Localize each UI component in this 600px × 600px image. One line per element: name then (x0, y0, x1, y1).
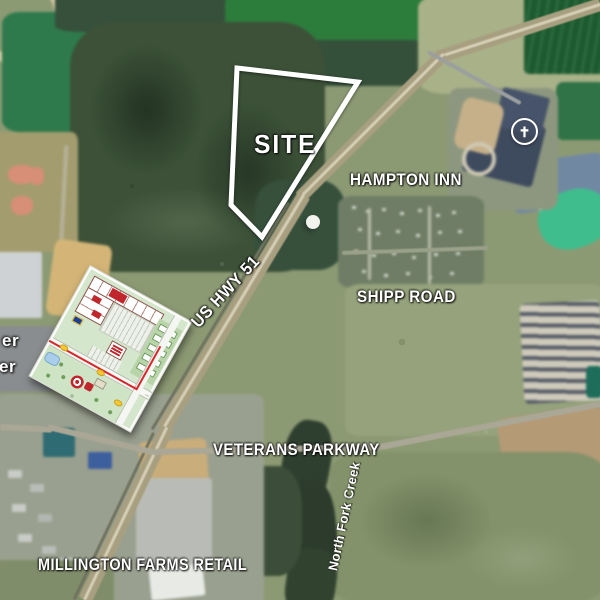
veterans-parkway-label: VETERANS PARKWAY (213, 440, 380, 460)
aerial-map: ✝ SITE HAMPTON INN SHIPP ROAD US HWY 51 … (0, 0, 600, 600)
church-marker: ✝ (511, 118, 538, 145)
water-tower (306, 215, 320, 229)
left-edge-label-fragment: er (0, 357, 16, 377)
millington-farms-retail-label: MILLINGTON FARMS RETAIL (38, 555, 247, 575)
school-driveway (427, 50, 522, 105)
shipp-road-label: SHIPP ROAD (357, 288, 456, 307)
church-cross-icon: ✝ (519, 125, 531, 139)
us-hwy-51-road (157, 192, 310, 434)
road-centerline (437, 3, 600, 59)
left-edge-label-fragment: er (2, 331, 19, 351)
veterans-parkway-road (47, 424, 153, 455)
veterans-parkway-road (379, 401, 600, 450)
veterans-parkway-road (0, 424, 52, 433)
road-centerline (161, 194, 305, 430)
shipp-road-road (342, 246, 488, 255)
site-label: SITE (254, 129, 317, 160)
hampton-inn-label: HAMPTON INN (350, 171, 462, 190)
us-hwy-51-road (435, 0, 600, 64)
